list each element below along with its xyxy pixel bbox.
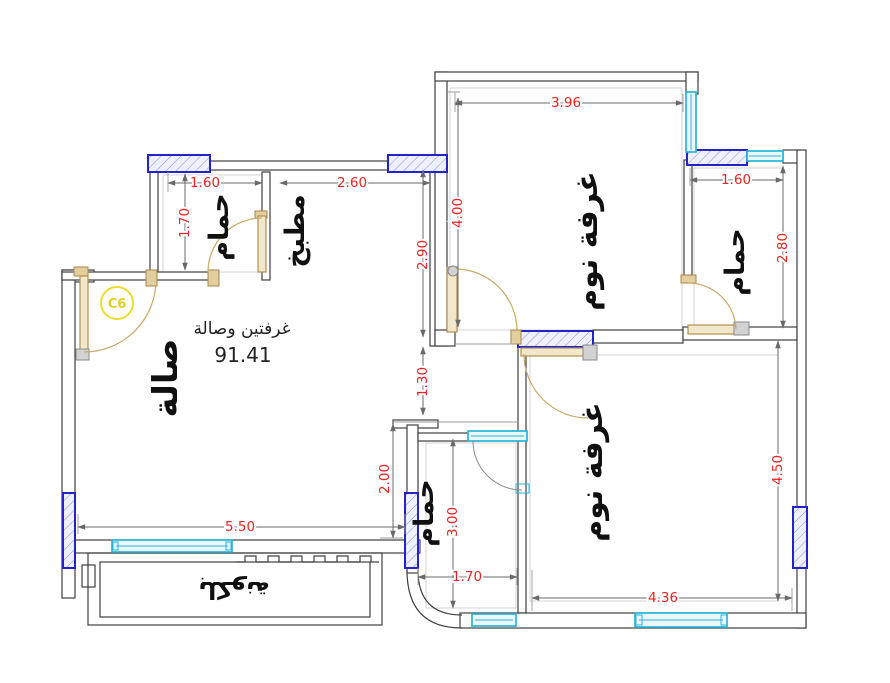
door-swing-entrance [74,267,156,360]
column-symbol [793,507,807,568]
room-label-kitchen: مطبخ [280,194,311,268]
dim-bedroom-top-width: 3.96 [551,95,581,111]
dim-bathroom-bottom-width: 1.70 [452,569,482,585]
dim-bedroom-top-height: 4.00 [450,198,466,228]
room-label-bathroom-top-right: حمام [720,228,751,296]
room-label-bathroom-top-left: حمام [204,193,235,261]
room-label-hall: صالة [146,338,186,417]
dim-bathroom-top-left-width: 1.60 [190,175,220,191]
plan-area-value: 91.41 [214,343,271,367]
dim-hall-width: 5.50 [225,519,255,535]
room-labels: حمام مطبخ غرفة نوم حمام صالة غرفة نوم حم… [146,171,751,604]
column-symbol [518,331,593,347]
column-symbol [148,155,210,172]
window-symbol [472,614,516,626]
dim-bathroom-top-right-height: 2.80 [775,233,791,263]
room-label-bedroom-top: غرفة نوم [570,171,605,311]
dim-kitchen-width: 2.60 [337,175,367,191]
window-symbol [635,613,727,627]
column-symbol [388,155,447,172]
dim-bedroom-bottom-height: 4.50 [770,455,786,485]
floor-plan-drawing: 3.96 4.00 2.90 2.60 1.60 1.70 1.60 2.80 … [0,0,890,683]
dim-bedroom-bottom-width: 4.36 [648,590,678,606]
room-label-balcony: بلكونة [198,576,269,604]
window-symbol [747,151,783,161]
column-symbol [63,493,75,568]
dim-bathroom-top-right-width: 1.60 [721,172,751,188]
dim-bathroom-top-left-height: 1.70 [177,208,193,238]
dim-bathroom-bottom-height: 3.00 [445,507,461,537]
column-tag-text: C6 [108,297,127,312]
window-symbol [112,540,232,552]
room-label-bedroom-bottom: غرفة نوم [575,402,610,542]
column-tag: C6 [101,287,133,319]
dim-kitchen-height: 2.90 [415,240,431,270]
dim-hall-right-height: 2.00 [377,464,393,494]
floor-plan-page: 3.96 4.00 2.90 2.60 1.60 1.70 1.60 2.80 … [0,0,890,683]
room-label-bathroom-bottom: حمام [409,479,440,547]
dim-hall-opening: 1.30 [415,367,431,397]
plan-summary-label: غرفتين وصالة [193,319,290,339]
window-symbol [686,92,696,152]
